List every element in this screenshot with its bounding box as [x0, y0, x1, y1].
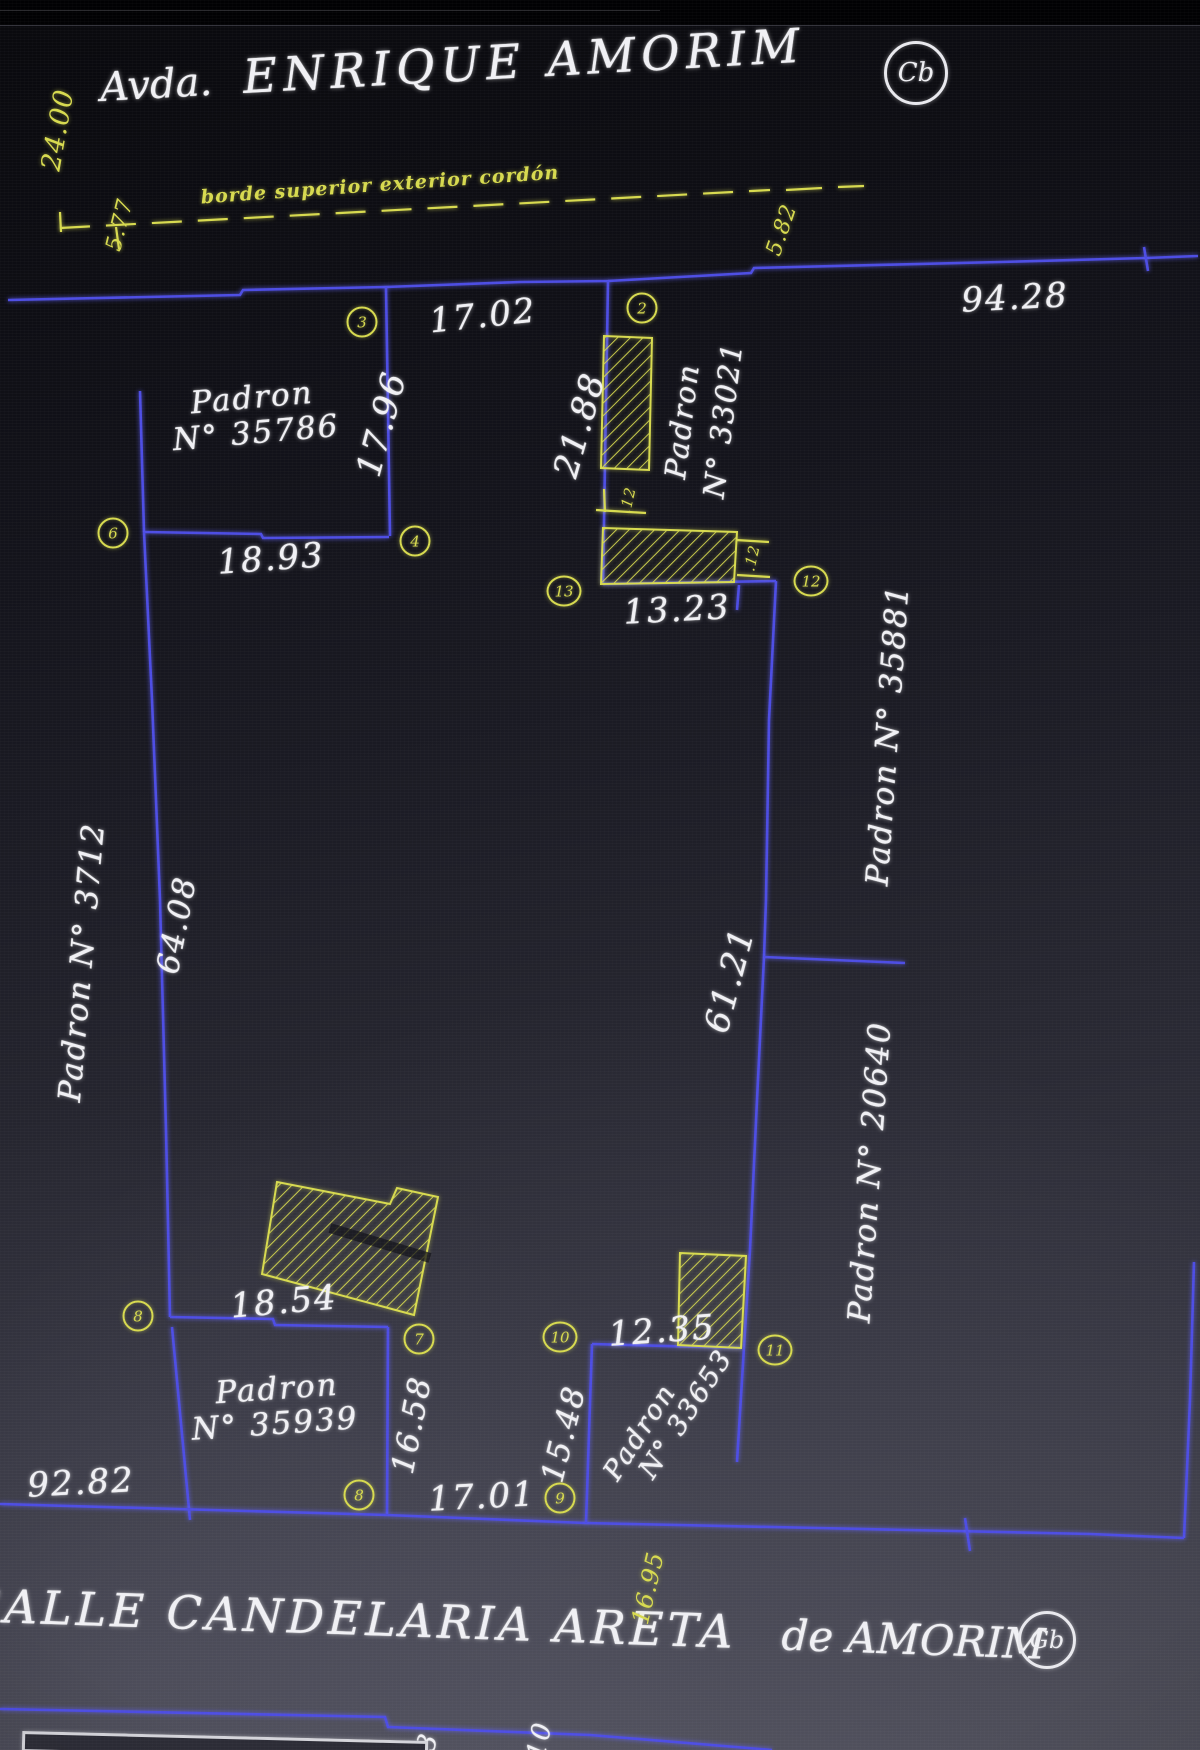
hatch-rect-13-23 — [601, 528, 737, 584]
vertex-8-left-label: 8 — [133, 1307, 143, 1325]
dim-13-23: 13.23 — [622, 587, 731, 633]
vertex-3-label: 3 — [357, 313, 367, 331]
hatched-areas — [262, 336, 770, 1348]
vertex-10-label: 10 — [550, 1328, 569, 1346]
p35939-left-edge — [172, 1327, 190, 1520]
cad-plan-photo: Avda. ENRIQUE AMORIM Cb CALLE CANDELARIA… — [0, 0, 1200, 1750]
vertex-6-label: 6 — [108, 524, 118, 542]
vertex-9-label: 9 — [555, 1489, 565, 1507]
boundary-lines — [0, 247, 1198, 1750]
p35786-left-edge — [140, 391, 144, 532]
vertex-11: 11 — [758, 1335, 793, 1366]
vertex-4-label: 4 — [410, 532, 420, 550]
ref-circle-bottom: Gb — [1018, 1611, 1076, 1669]
vertex-6: 6 — [98, 518, 129, 549]
dim-92-82: 92.82 — [26, 1460, 135, 1506]
dim-94-28: 94.28 — [960, 275, 1069, 321]
branch-35881-20640 — [764, 957, 905, 963]
street-prefix: Avda. — [99, 59, 213, 111]
bottom-street-suffix: de AMORIM — [781, 1611, 1047, 1669]
vertex-7-label: 7 — [414, 1330, 424, 1348]
vertex-13-label: 13 — [554, 582, 573, 600]
vertex-8-bottom-label: 8 — [354, 1486, 364, 1504]
hatch-strip-33021 — [601, 336, 652, 470]
vertex-10: 10 — [543, 1322, 578, 1353]
vertex-11-label: 11 — [765, 1341, 784, 1359]
ref-circle-top: Cb — [884, 41, 948, 105]
p33653-left-edge — [586, 1344, 592, 1523]
vertex-7: 7 — [404, 1324, 435, 1355]
dim-17-01: 17.01 — [427, 1474, 536, 1520]
vertex-2-label: 2 — [637, 299, 647, 317]
dim-partial-b: 10 — [521, 1719, 558, 1750]
cad-drawing: Avda. ENRIQUE AMORIM Cb CALLE CANDELARIA… — [0, 0, 1200, 1750]
vertex-13: 13 — [547, 576, 582, 607]
ref-circle-bottom-label: Gb — [1030, 1626, 1065, 1654]
line-16-58 — [387, 1327, 388, 1514]
line-18-93 — [144, 532, 389, 538]
monitor-bezel — [0, 0, 1200, 26]
vertex-12-label: 12 — [801, 572, 820, 590]
bottom-tick — [965, 1518, 970, 1551]
dim-12-35: 12.35 — [607, 1307, 717, 1354]
vertex-8-left: 8 — [123, 1301, 154, 1332]
vertex-12: 12 — [794, 566, 829, 597]
right-boundary — [1184, 1262, 1194, 1538]
street-bottom-line — [0, 1504, 1184, 1538]
tick-13-23 — [737, 585, 739, 610]
vertex-2: 2 — [627, 293, 658, 324]
vertex-9: 9 — [545, 1483, 576, 1514]
vertex-4: 4 — [400, 526, 431, 557]
vertex-8-bottom: 8 — [344, 1480, 375, 1511]
dim-18-93: 18.93 — [216, 535, 326, 582]
vertex-3: 3 — [347, 307, 378, 338]
curb-dashed-line — [60, 186, 864, 249]
ref-circle-top-label: Cb — [898, 58, 935, 88]
p33653-right-edge — [737, 1347, 744, 1462]
